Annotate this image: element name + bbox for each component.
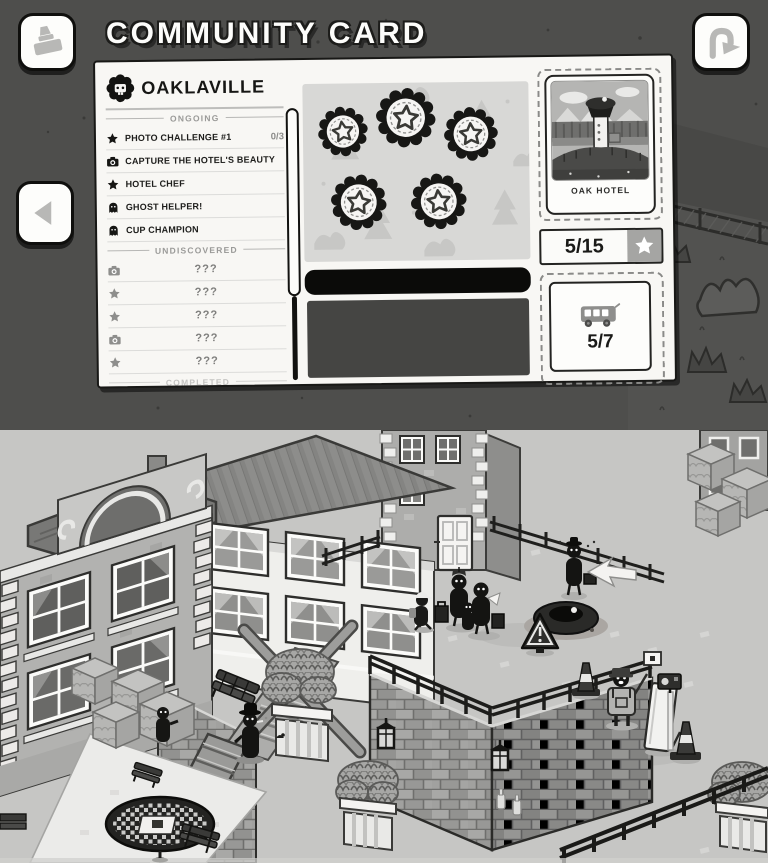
star-counter-value: 5/15 — [541, 230, 627, 263]
bus-icon — [578, 300, 622, 331]
oak-hotel-photo — [550, 80, 649, 181]
quest-label: CAPTURE THE HOTEL'S BEAUTY — [125, 154, 284, 166]
quest-row[interactable]: HOTEL CHEF — [106, 171, 284, 196]
undiscovered-row[interactable]: ??? — [109, 349, 287, 374]
progress-bar — [305, 267, 531, 295]
quest-list: OAKLAVILLE ONGOING PHOTO CHALLENGE #1 0/… — [105, 66, 287, 386]
quest-row[interactable]: PHOTO CHALLENGE #1 0/3 — [106, 125, 284, 150]
scrollbar-thumb[interactable] — [286, 108, 301, 296]
flip-card-button[interactable] — [692, 13, 750, 71]
undiscovered-label: ??? — [128, 354, 287, 368]
section-completed: COMPLETED — [109, 372, 287, 386]
scrollbar-track[interactable] — [292, 296, 298, 380]
star-icon — [108, 310, 121, 323]
photo-caption: OAK HOTEL — [552, 185, 650, 196]
undiscovered-row[interactable]: ??? — [108, 280, 286, 305]
undiscovered-label: ??? — [127, 308, 286, 322]
quest-row[interactable]: CUP CHAMPION — [107, 217, 285, 242]
bus-slot: 5/7 — [540, 272, 665, 386]
camera-icon — [108, 264, 121, 277]
stamp-icon — [25, 20, 69, 64]
community-card: OAKLAVILLE ONGOING PHOTO CHALLENGE #1 0/… — [93, 53, 677, 388]
camera-icon — [108, 333, 121, 346]
undiscovered-row[interactable]: ??? — [108, 326, 286, 351]
curved-arrow-icon — [699, 20, 743, 64]
quest-label: HOTEL CHEF — [125, 177, 284, 189]
photo-card[interactable]: OAK HOTEL — [544, 74, 656, 215]
detail-panel — [307, 298, 530, 378]
stamp-badge — [313, 102, 372, 161]
town-mascot-icon — [105, 73, 135, 103]
star-icon — [109, 356, 122, 369]
quest-label: GHOST HELPER! — [126, 200, 285, 212]
photo-slot: OAK HOTEL — [537, 68, 663, 222]
quest-label: PHOTO CHALLENGE #1 — [125, 131, 265, 143]
star-counter-badge — [627, 230, 661, 262]
stamp-collection-panel — [302, 81, 530, 262]
undiscovered-label: ??? — [127, 285, 286, 299]
stamp-badge — [407, 170, 470, 233]
bus-counter-card: 5/7 — [549, 281, 652, 372]
ghost-icon — [107, 224, 120, 237]
game-scene — [0, 430, 768, 863]
town-name: OAKLAVILLE — [141, 76, 265, 99]
star-icon — [106, 178, 119, 191]
bottom-strip — [0, 858, 768, 863]
quest-label: CUP CHAMPION — [126, 223, 285, 235]
undiscovered-row[interactable]: ??? — [108, 303, 286, 328]
star-counter: 5/15 — [539, 228, 663, 266]
undiscovered-row[interactable]: ??? — [107, 257, 285, 282]
undiscovered-label: ??? — [127, 262, 286, 276]
section-ongoing: ONGOING — [106, 108, 284, 127]
stamp-badge — [373, 85, 439, 151]
undiscovered-label: ??? — [127, 331, 286, 345]
camera-icon — [106, 155, 119, 168]
previous-card-button[interactable] — [16, 181, 74, 245]
section-undiscovered: UNDISCOVERED — [107, 240, 285, 259]
quest-row[interactable]: GHOST HELPER! — [107, 194, 285, 219]
ghost-icon — [107, 201, 120, 214]
stamp-badge — [327, 170, 391, 234]
quest-progress: 0/3 — [271, 131, 284, 142]
planter-lower — [336, 761, 398, 850]
stamp-badge — [441, 104, 500, 163]
star-icon — [633, 235, 655, 257]
card-right-column: OAK HOTEL 5/15 5/7 — [537, 66, 661, 68]
bus-counter-value: 5/7 — [587, 331, 614, 353]
star-icon — [108, 287, 121, 300]
town-header: OAKLAVILLE — [105, 66, 283, 110]
edge-bench — [0, 814, 26, 829]
left-triangle-icon — [25, 193, 65, 233]
page-title: COMMUNITY CARD — [106, 17, 427, 51]
game-screen: COMMUNITY CARD OAKLAVILLE ONGOING PHOTO … — [0, 0, 768, 863]
quest-scrollbar — [286, 108, 302, 382]
quest-row[interactable]: CAPTURE THE HOTEL'S BEAUTY — [106, 148, 284, 173]
star-icon — [106, 132, 119, 145]
stamp-tool-button[interactable] — [18, 13, 76, 71]
